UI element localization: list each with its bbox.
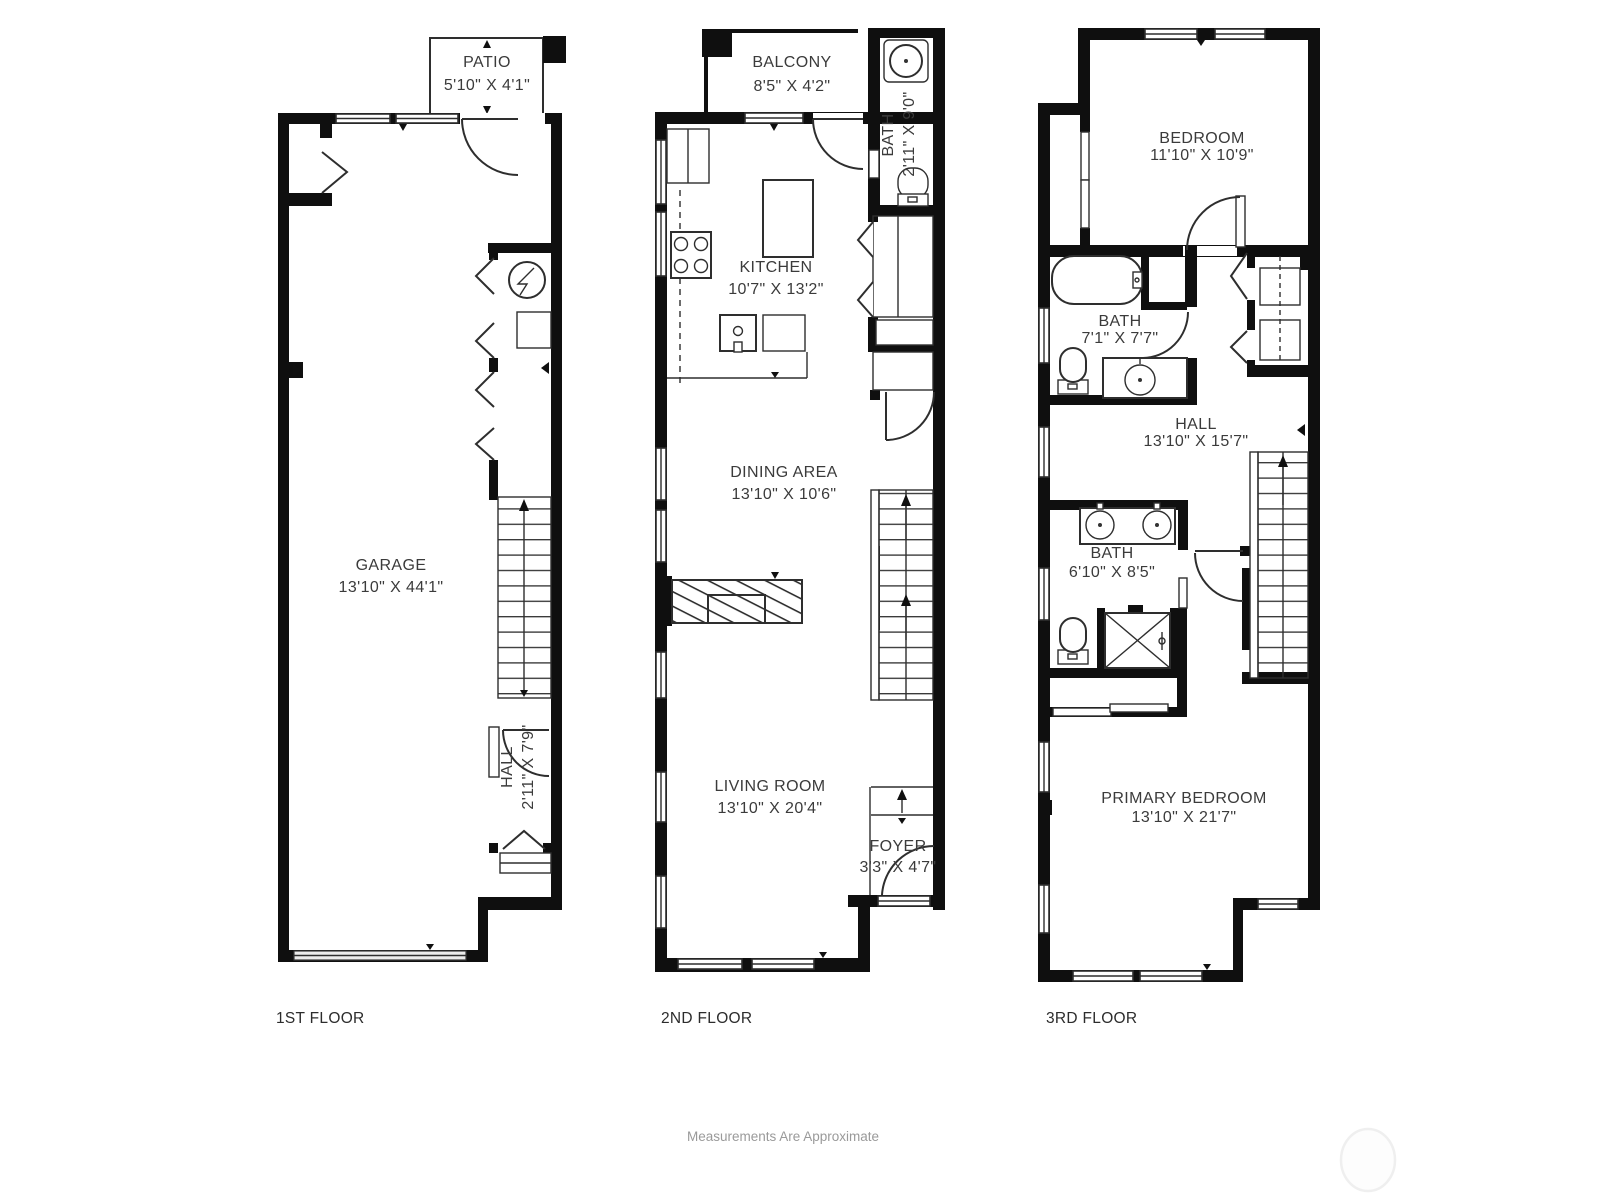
room-label-garage-dims: 13'10" X 44'1"	[339, 579, 444, 596]
room-label-kitchen-name: KITCHEN	[739, 259, 812, 276]
room-label-hall3-name: HALL	[1175, 416, 1217, 433]
room-label-primary-dims: 13'10" X 21'7"	[1132, 809, 1237, 826]
room-label-hall1-name: HALL	[499, 746, 516, 788]
closet-bifold-door	[322, 152, 347, 193]
toilet-fixture-lower	[1058, 618, 1088, 664]
floorplan-drawing: PATIO 5'10" X 4'1" GARAGE 13'10" X 44'1"…	[0, 0, 1600, 1200]
bath-lower-door-leaf	[1179, 578, 1187, 608]
room-label-dining-name: DINING AREA	[730, 464, 838, 481]
room-label-bath2f-name: BATH	[880, 113, 897, 156]
vanity-double-sink	[1080, 503, 1175, 544]
hall-closet	[1231, 253, 1300, 363]
balcony-door-swing	[813, 113, 863, 169]
kitchen-counter-island	[763, 180, 813, 257]
floor2-caption: 2ND FLOOR	[661, 1010, 752, 1027]
bath2f-door-leaf	[869, 150, 879, 178]
bedroom-door-swing	[1187, 196, 1245, 250]
vanity-sink-upper	[1103, 358, 1187, 398]
dimension-tick	[541, 362, 549, 374]
refrigerator-fixture	[667, 129, 709, 183]
kitchen-sink-fixture	[720, 315, 756, 352]
room-label-living-name: LIVING ROOM	[714, 778, 825, 795]
room-label-balcony-dims: 8'5" X 4'2"	[753, 78, 830, 95]
room-label-balcony-name: BALCONY	[752, 54, 831, 71]
toilet-fixture-upper	[1058, 348, 1088, 394]
pantry-closet	[858, 216, 933, 390]
room-label-patio-dims: 5'10" X 4'1"	[444, 77, 530, 94]
floor2-left-windows	[656, 140, 666, 928]
stove-fixture	[671, 232, 711, 278]
room-label-garage-name: GARAGE	[356, 557, 427, 574]
watermark-circle	[1341, 1129, 1395, 1191]
disclaimer-text: Measurements Are Approximate	[687, 1129, 879, 1144]
kitchen-island-hatched	[672, 572, 802, 623]
floor3-plan: BEDROOM 11'10" X 10'9" BATH 7'1" X 7'7" …	[1038, 28, 1320, 982]
floor1-caption: 1ST FLOOR	[276, 1010, 365, 1027]
room-label-bath-lower-name: BATH	[1090, 545, 1133, 562]
kitchen-counter-edge	[667, 352, 807, 378]
room-label-dining-dims: 13'10" X 10'6"	[732, 486, 837, 503]
floorplan-page: PATIO 5'10" X 4'1" GARAGE 13'10" X 44'1"…	[0, 0, 1600, 1200]
room-label-living-dims: 13'10" X 20'4"	[718, 800, 823, 817]
patio-deck	[430, 36, 566, 115]
floor2-plan: BALCONY 8'5" X 4'2" BATH 2'11" X 9'0" KI…	[655, 28, 945, 972]
room-label-foyer-name: FOYER	[869, 838, 926, 855]
balcony-window	[745, 113, 803, 131]
floor3-bottom-windows	[1073, 899, 1298, 981]
kitchen-counter	[763, 315, 805, 351]
floor3-caption: 3RD FLOOR	[1046, 1010, 1137, 1027]
room-label-bath-lower-dims: 6'10" X 8'5"	[1069, 564, 1155, 581]
room-label-bath2f-dims: 2'11" X 9'0"	[901, 91, 918, 176]
bathtub-fixture	[1052, 256, 1142, 304]
staircase-floor2	[871, 490, 933, 700]
room-label-hall1-dims: 2'11" X 7'9"	[520, 724, 537, 809]
bedroom-closet-doors	[1081, 132, 1089, 228]
dimension-tick	[1297, 424, 1305, 436]
room-label-bedroom-dims: 11'10" X 10'9"	[1150, 147, 1254, 164]
staircase-floor3	[1250, 452, 1308, 678]
room-label-kitchen-dims: 10'7" X 13'2"	[728, 281, 824, 298]
floor1-plan: PATIO 5'10" X 4'1" GARAGE 13'10" X 44'1"…	[278, 36, 566, 962]
bath2f-sink-fixture	[884, 40, 928, 82]
staircase-floor1	[498, 497, 551, 698]
hall-door-swing-floor3	[1195, 551, 1243, 601]
garage-door	[294, 944, 466, 960]
balcony-deck	[702, 29, 858, 113]
room-label-bath-upper-dims: 7'1" X 7'7"	[1081, 330, 1158, 347]
shower-fixture	[1105, 613, 1170, 668]
hall-door-swing	[489, 727, 549, 777]
room-label-bath-upper-name: BATH	[1098, 313, 1141, 330]
room-label-bedroom-name: BEDROOM	[1159, 130, 1244, 147]
floor2-bottom-windows	[678, 952, 827, 969]
room-label-primary-name: PRIMARY BEDROOM	[1101, 790, 1266, 807]
closet-door-swing	[886, 392, 934, 440]
room-label-patio-name: PATIO	[463, 54, 511, 71]
room-label-hall3-dims: 13'10" X 15'7"	[1144, 433, 1249, 450]
room-label-foyer-dims: 3'3" X 4'7"	[859, 859, 936, 876]
floor1-windows	[336, 114, 458, 123]
electrical-panel-icon	[509, 262, 551, 348]
